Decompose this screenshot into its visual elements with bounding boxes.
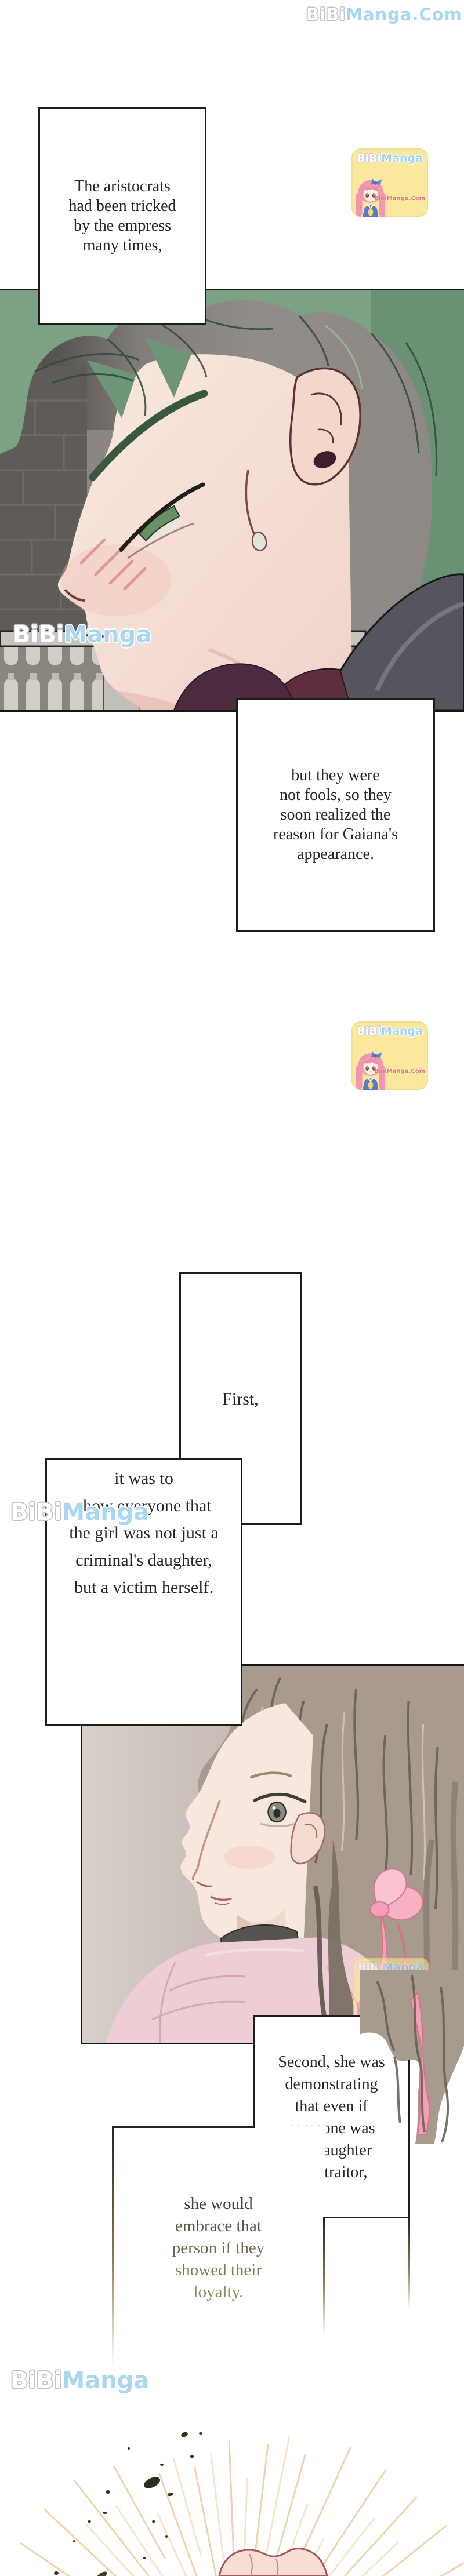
- hair-overflow-art: [360, 1970, 464, 2144]
- clasped-hands-art: [219, 2549, 327, 2576]
- watermark-bibi-text: BiBi: [13, 621, 64, 648]
- fading-border-line: [323, 2218, 325, 2334]
- narration-line: person if they: [112, 2237, 325, 2259]
- sticker-title-bibi: BiBi: [357, 152, 381, 165]
- watermark-manga-text: Manga: [64, 621, 151, 648]
- watermark-manga-text: Manga: [61, 1499, 149, 1526]
- bottom-sunburst-art: [0, 2367, 464, 2576]
- narration-line: many times,: [40, 236, 205, 256]
- narration-line: had been tricked: [40, 197, 205, 216]
- narration-box-not-fools: but they werenot fools, so theysoon real…: [236, 698, 435, 932]
- watermark-bibi-text: BiBi: [10, 2367, 61, 2394]
- narration-line: First,: [181, 1388, 300, 1410]
- box-border-segment: [112, 2126, 255, 2128]
- ink-specks: [54, 2431, 202, 2576]
- narration-line: she would: [112, 2193, 325, 2215]
- watermark-bibi-text: BiBi: [306, 5, 346, 24]
- site-watermark-left-1: BiBiManga: [13, 621, 151, 648]
- narration-line: not fools, so they: [238, 785, 433, 805]
- narration-line: by the empress: [40, 216, 205, 236]
- narration-line: but a victim herself.: [47, 1574, 241, 1601]
- narration-line: showed their: [112, 2259, 325, 2281]
- watermark-manga-text: Manga: [61, 2367, 149, 2394]
- narration-line: loyalty.: [112, 2281, 325, 2303]
- watermark-manga-com-text: Manga.Com: [346, 5, 462, 24]
- narration-box-aristocrats: The aristocratshad been trickedby the em…: [38, 107, 206, 325]
- narration-line: The aristocrats: [40, 177, 205, 197]
- sticker-title: BiBiManga: [351, 152, 428, 165]
- fading-border-line: [408, 2218, 410, 2310]
- sticker-title-manga: Manga: [381, 1025, 423, 1038]
- watermark-bibi-text: BiBi: [10, 1499, 61, 1526]
- sticker-title-manga: Manga: [381, 152, 423, 165]
- bibimanga-sticker: BiBiManga BibiManga.Com: [351, 148, 428, 217]
- narration-line: reason for Gaiana's: [238, 825, 433, 845]
- site-watermark-left-3: BiBiManga: [10, 2367, 149, 2394]
- sticker-url: BibiManga.Com: [374, 195, 425, 202]
- sticker-title-bibi: BiBi: [357, 1025, 381, 1038]
- narration-line: appearance.: [238, 845, 433, 864]
- site-watermark-top: BiBiManga.Com: [306, 5, 462, 24]
- narration-line: but they were: [238, 766, 433, 785]
- manga-reader-page: BiBiManga.Com The aristocratshad been tr…: [0, 0, 464, 2576]
- sticker-url: BibiManga.Com: [374, 1068, 425, 1075]
- sticker-title: BiBiManga: [351, 1025, 428, 1038]
- narration-box-loyalty: she wouldembrace thatperson if theyshowe…: [112, 2126, 325, 2370]
- narration-line: criminal's daughter,: [47, 1547, 241, 1574]
- panel-green-haired-man: [0, 289, 464, 712]
- box-border-segment: [323, 2217, 410, 2218]
- narration-line: embrace that: [112, 2215, 325, 2237]
- site-watermark-left-2: BiBiManga: [10, 1499, 149, 1526]
- narration-line: soon realized the: [238, 805, 433, 825]
- bibimanga-sticker: BiBiManga BibiManga.Com: [351, 1021, 428, 1090]
- narration-line: it was to: [47, 1465, 241, 1492]
- fading-border-line: [112, 2126, 114, 2366]
